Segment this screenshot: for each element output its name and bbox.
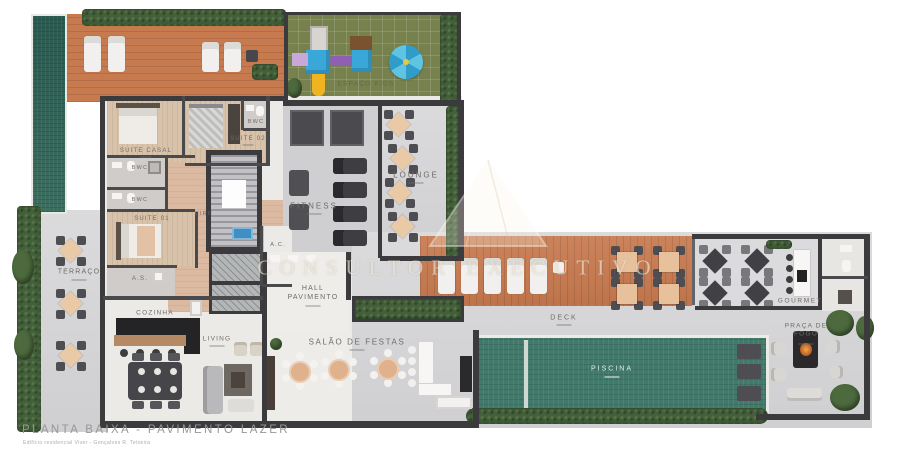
- sun-lounger: [84, 36, 101, 72]
- grass-strip-pool: [466, 408, 768, 424]
- interior-wall: [195, 212, 198, 268]
- label-piscina: PISCINA: [591, 366, 633, 373]
- play-tower: [310, 26, 328, 52]
- play-arm-lavender: [292, 53, 308, 66]
- interior-wall: [107, 209, 195, 212]
- lounge-table-set: [382, 108, 416, 142]
- label-suite-02: SUITE 02: [230, 136, 266, 142]
- floor-plan: TERRAÇO ESPAÇO KIDS: [0, 0, 900, 455]
- play-tube-purple: [330, 56, 353, 66]
- label-terraco: TERRAÇO: [58, 269, 101, 276]
- area-text: [210, 345, 225, 347]
- washer: [152, 270, 165, 283]
- bush: [12, 250, 34, 284]
- terrace-table-set: [54, 287, 88, 321]
- wall: [756, 414, 868, 420]
- planter-green: [355, 299, 461, 319]
- island-stools: [786, 254, 793, 261]
- interior-wall: [822, 276, 868, 279]
- pool-divider: [524, 340, 528, 408]
- play-cube-blue: [352, 50, 372, 72]
- bed-throw: [137, 226, 155, 256]
- wall: [695, 306, 822, 310]
- area-text: [141, 156, 152, 158]
- in-pool-lounger: [737, 386, 761, 401]
- wall: [100, 96, 105, 426]
- label-circ: CIRC: [195, 211, 213, 217]
- stair-landing: [222, 180, 246, 208]
- area-text: [409, 182, 424, 184]
- in-pool-lounger: [737, 364, 761, 379]
- area-text: [605, 376, 620, 378]
- sun-lounger: [108, 36, 125, 72]
- label-praca-fogo: PRAÇA DE FOGO: [782, 323, 830, 340]
- treadmill: [333, 182, 367, 198]
- sink: [112, 162, 122, 168]
- table-top: [617, 284, 637, 304]
- label-deck: DECK: [550, 315, 577, 322]
- interior-wall: [243, 128, 268, 131]
- label-bwc-suite-02: BWC: [248, 119, 264, 125]
- sink: [246, 105, 254, 111]
- chairs: [296, 352, 304, 360]
- hedge-terraco-left: [17, 206, 41, 432]
- bar-stools: [408, 346, 416, 354]
- toilet: [842, 260, 851, 272]
- gourmet-table-set: [697, 243, 733, 279]
- area-text: [350, 349, 365, 351]
- label-suite-casal: SUITE CASAL: [120, 148, 172, 154]
- hedge-gourmet-top: [766, 240, 792, 249]
- lap-pool: [33, 16, 65, 212]
- kitchen-counter-corner: [184, 318, 200, 354]
- chairs: [741, 277, 750, 286]
- area-text: [72, 279, 87, 281]
- appliance-column: [460, 356, 472, 392]
- terrace-table-set: [54, 339, 88, 373]
- label-fitness: FITNESS: [290, 202, 338, 211]
- label-suite-01: SUITE 01: [134, 216, 170, 222]
- area-text: [557, 324, 572, 326]
- interior-wall: [241, 100, 244, 130]
- wall: [100, 96, 286, 101]
- gym-rack: [330, 110, 364, 146]
- wall: [864, 236, 870, 420]
- party-table-set: [319, 350, 359, 390]
- label-as: A.S.: [132, 276, 148, 282]
- treadmill: [333, 230, 367, 246]
- interior-wall: [185, 163, 270, 166]
- hedge-kids-right: [440, 14, 458, 104]
- chairs: [384, 349, 392, 357]
- water-tank: [232, 227, 253, 240]
- table-top: [328, 359, 350, 381]
- label-hall: HALL PAVIMENTO: [284, 284, 342, 302]
- swimming-pool: [478, 338, 766, 410]
- wall: [284, 12, 460, 15]
- area-text: [306, 305, 321, 307]
- party-table-set: [280, 352, 320, 392]
- sink: [112, 193, 122, 199]
- area-text: [243, 144, 254, 146]
- page-title: PLANTA BAIXA - PAVIMENTO LAZER: [22, 424, 290, 436]
- toilet: [256, 106, 264, 116]
- wall: [378, 100, 382, 258]
- watermark-text: CONSULTOR EXECUTIVO: [257, 256, 658, 281]
- interior-wall: [107, 187, 167, 190]
- gym-rack: [290, 110, 324, 146]
- interior-wall: [165, 158, 168, 212]
- table-top: [289, 361, 311, 383]
- kitchen-counter: [436, 396, 472, 409]
- bar-stools: [120, 349, 128, 357]
- storage-unit: [838, 290, 852, 304]
- play-slide-yellow: [312, 74, 325, 96]
- table-top: [659, 284, 679, 304]
- armchair: [771, 342, 786, 355]
- label-ac: A.C.: [270, 242, 286, 248]
- fridge: [190, 300, 202, 316]
- chairs: [699, 277, 708, 286]
- deck-table-set: [609, 276, 645, 312]
- bush: [270, 338, 282, 350]
- bar-counter: [419, 384, 451, 395]
- dining-table: [128, 362, 182, 400]
- interior-wall: [103, 296, 263, 300]
- glass-partition: [692, 239, 695, 305]
- elevator-shaft: [212, 254, 260, 281]
- label-cozinha: COZINHA: [136, 310, 174, 317]
- play-cube-blue: [306, 50, 330, 74]
- dining-chairs-bottom: [132, 401, 144, 409]
- plates: [138, 368, 145, 375]
- label-espaco-kids: ESPAÇO KIDS: [338, 81, 395, 88]
- bush: [830, 384, 860, 411]
- label-bwc-1: BWC: [132, 165, 148, 171]
- hedge-top: [82, 9, 286, 26]
- bush: [826, 310, 854, 336]
- wall: [284, 12, 288, 104]
- deck-planter: [252, 64, 278, 80]
- shower: [148, 161, 161, 174]
- label-bwc-2: BWC: [132, 197, 148, 203]
- chairs: [741, 245, 750, 254]
- label-living: LIVING: [203, 336, 232, 343]
- bush: [14, 330, 34, 360]
- sun-lounger: [202, 42, 219, 72]
- tv-sideboard: [266, 356, 275, 410]
- wall: [283, 100, 463, 106]
- armchair: [830, 366, 843, 378]
- kitchen-counter-wood-front: [114, 335, 186, 346]
- interior-wall: [107, 265, 177, 268]
- sofa: [787, 388, 822, 401]
- armchair: [771, 368, 786, 381]
- table-top: [659, 252, 679, 272]
- area-text: [307, 213, 322, 215]
- chairs: [335, 350, 343, 358]
- play-platform-brown: [350, 36, 372, 50]
- coffee-table: [231, 372, 245, 388]
- area-text: [799, 343, 814, 345]
- gym-machine: [289, 170, 309, 196]
- in-pool-lounger: [737, 344, 761, 359]
- treadmill: [333, 206, 367, 222]
- label-gourmet: GOURMET: [778, 298, 822, 305]
- wall: [692, 234, 870, 239]
- cooktop: [797, 270, 807, 282]
- label-salao: SALÃO DE FESTAS: [309, 338, 406, 347]
- deck-side-table: [246, 50, 258, 62]
- dining-chairs-top: [132, 353, 144, 361]
- wall: [457, 12, 461, 104]
- chairs: [699, 245, 708, 254]
- sink: [840, 245, 852, 252]
- bar-counter: [419, 342, 433, 386]
- treadmill: [333, 158, 367, 174]
- bush: [287, 78, 302, 98]
- lounge-table-set: [386, 210, 420, 244]
- daybed: [228, 399, 254, 412]
- armchair: [826, 340, 840, 353]
- bed: [189, 104, 223, 148]
- party-table-set: [368, 349, 408, 389]
- wall: [473, 330, 479, 426]
- sun-lounger: [224, 42, 241, 72]
- armchair: [234, 342, 247, 356]
- table-top: [377, 358, 399, 380]
- interior-wall: [182, 96, 185, 158]
- watermark-logo: [428, 158, 548, 248]
- bed: [119, 108, 157, 144]
- terrace-table-set: [54, 234, 88, 268]
- page-subtitle: Edifício residencial Viver - Gonçalves R…: [23, 440, 150, 446]
- sofa: [203, 366, 223, 414]
- carousel-center: [403, 59, 409, 65]
- deck-table-set: [651, 276, 687, 312]
